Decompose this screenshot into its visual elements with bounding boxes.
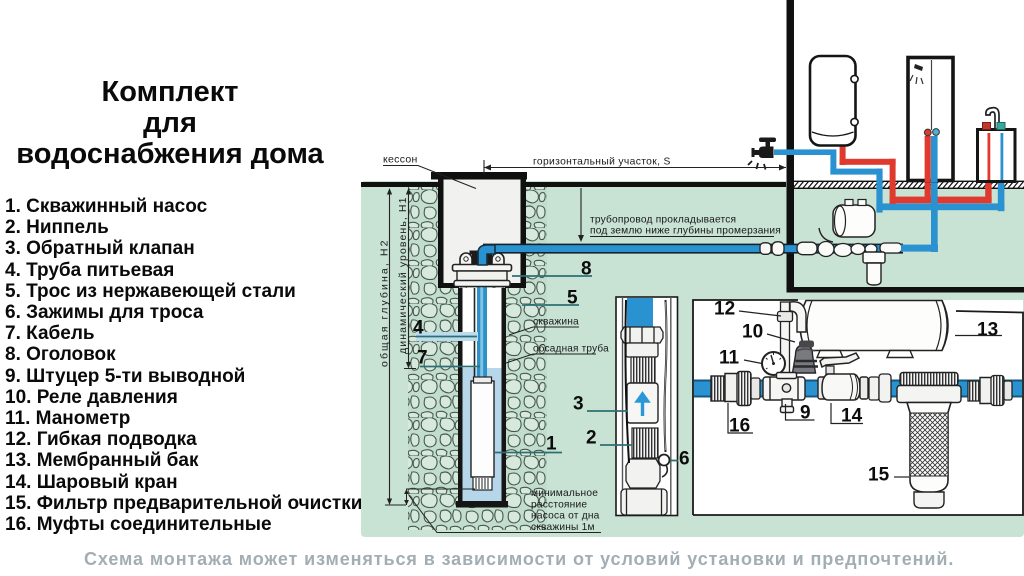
svg-text:трубопровод прокладывается: трубопровод прокладывается: [590, 214, 736, 226]
svg-text:2: 2: [586, 428, 597, 449]
svg-text:динамический уровень, Н1: динамический уровень, Н1: [397, 196, 409, 354]
svg-text:12: 12: [714, 299, 735, 320]
svg-text:расстояние: расстояние: [531, 499, 587, 510]
svg-text:1: 1: [546, 434, 557, 455]
svg-text:13: 13: [977, 320, 998, 341]
svg-text:7: 7: [417, 348, 428, 369]
svg-text:кессон: кессон: [383, 154, 418, 166]
svg-text:3: 3: [573, 394, 584, 415]
svg-text:6: 6: [679, 449, 690, 470]
svg-text:общая глубина, Н2: общая глубина, Н2: [379, 238, 391, 367]
svg-text:под землю ниже глубины промерз: под землю ниже глубины промерзания: [590, 225, 781, 237]
svg-text:насоса от дна: насоса от дна: [531, 511, 600, 522]
svg-text:скважины 1м: скважины 1м: [531, 522, 595, 533]
svg-text:обсадная труба: обсадная труба: [533, 343, 609, 355]
svg-text:4: 4: [413, 318, 424, 339]
svg-text:10: 10: [742, 322, 763, 343]
svg-text:15: 15: [868, 465, 890, 486]
svg-text:горизонтальный участок, S: горизонтальный участок, S: [533, 157, 671, 168]
svg-text:11: 11: [719, 348, 740, 369]
svg-text:скважина: скважина: [533, 317, 579, 328]
svg-text:минимальное: минимальное: [531, 488, 598, 499]
